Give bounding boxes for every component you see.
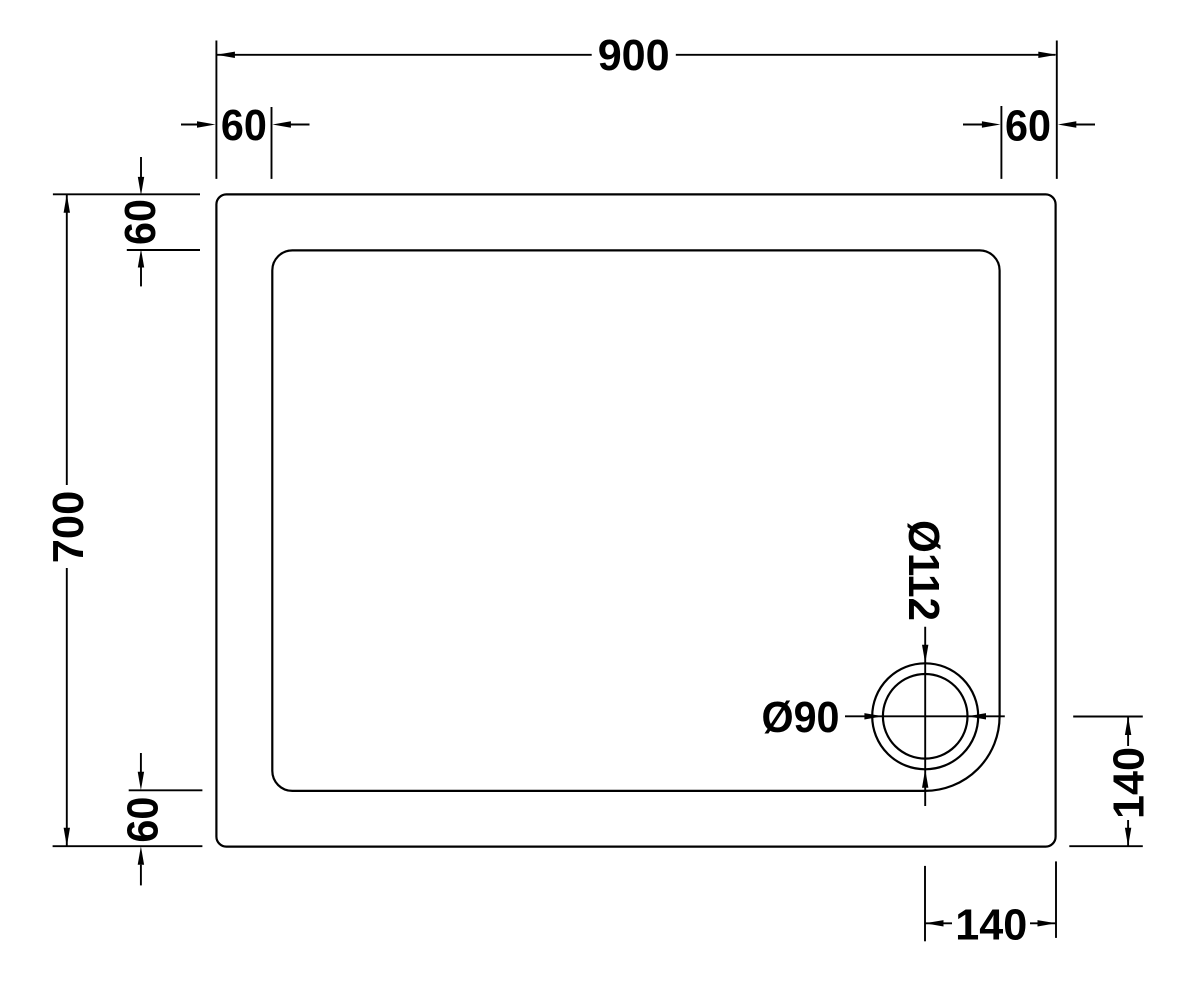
svg-text:700: 700: [44, 491, 93, 564]
svg-text:60: 60: [1005, 102, 1051, 151]
svg-text:140: 140: [955, 901, 1027, 950]
svg-text:Ø112: Ø112: [899, 520, 948, 621]
svg-text:60: 60: [116, 199, 165, 245]
svg-text:140: 140: [1105, 747, 1154, 819]
svg-text:900: 900: [598, 31, 670, 80]
svg-text:60: 60: [119, 797, 168, 843]
svg-text:Ø90: Ø90: [762, 693, 840, 742]
svg-text:60: 60: [221, 101, 267, 150]
